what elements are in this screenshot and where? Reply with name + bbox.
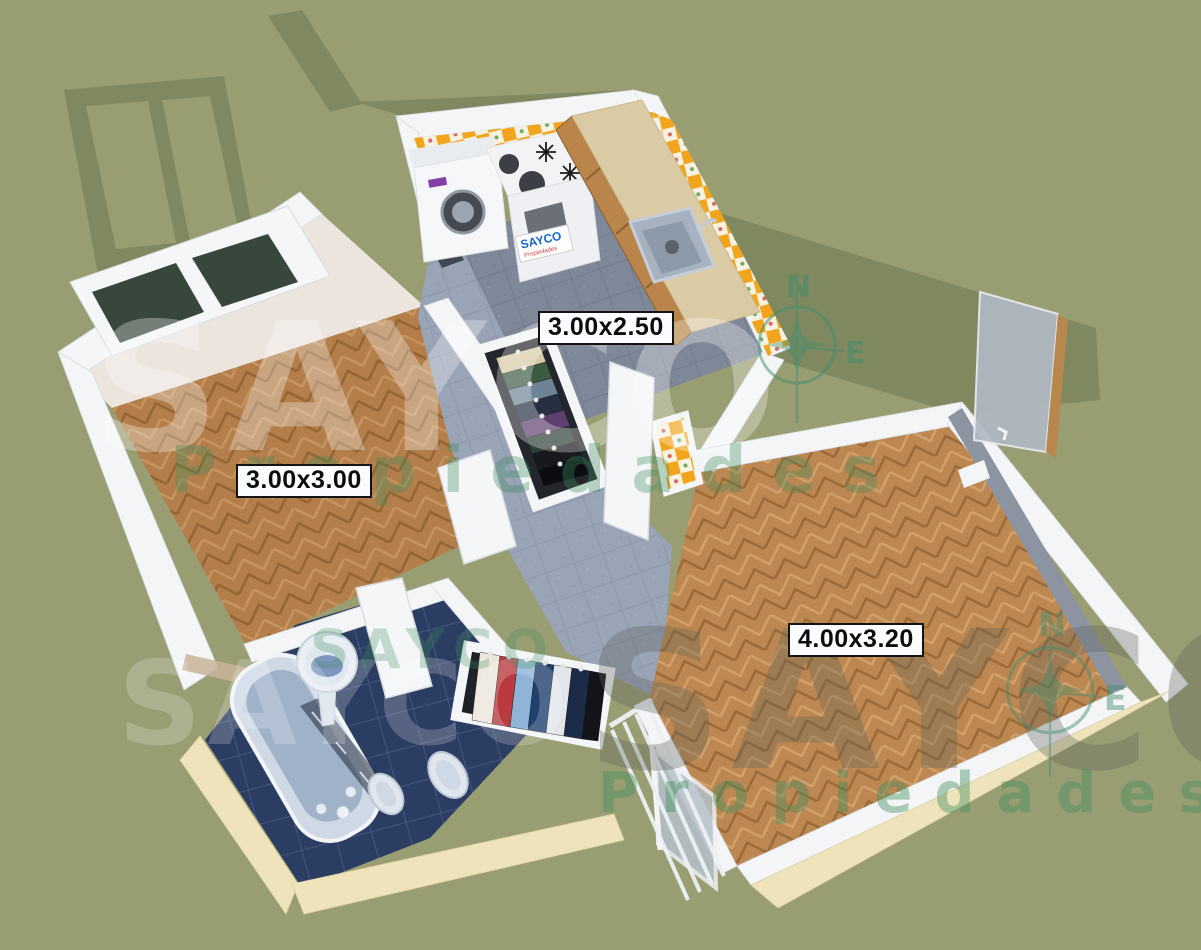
kitchen-dimension-label: 3.00x2.50 <box>538 311 674 345</box>
bedroom-dimension-label: 3.00x3.00 <box>236 464 372 498</box>
floor-plan-canvas: SAYCO Propiedades <box>0 0 1201 950</box>
sink-drain <box>665 240 679 254</box>
stove-burner <box>499 154 519 174</box>
hallway-door <box>604 362 654 540</box>
stove-gas-burner <box>536 142 556 162</box>
sink-water <box>311 655 343 677</box>
living-room-dimension-label: 4.00x3.20 <box>788 623 924 657</box>
washer-door-glass <box>452 201 474 223</box>
floor-plan-render: SAYCO Propiedades <box>0 0 1201 950</box>
door-glass-panel <box>974 292 1058 452</box>
